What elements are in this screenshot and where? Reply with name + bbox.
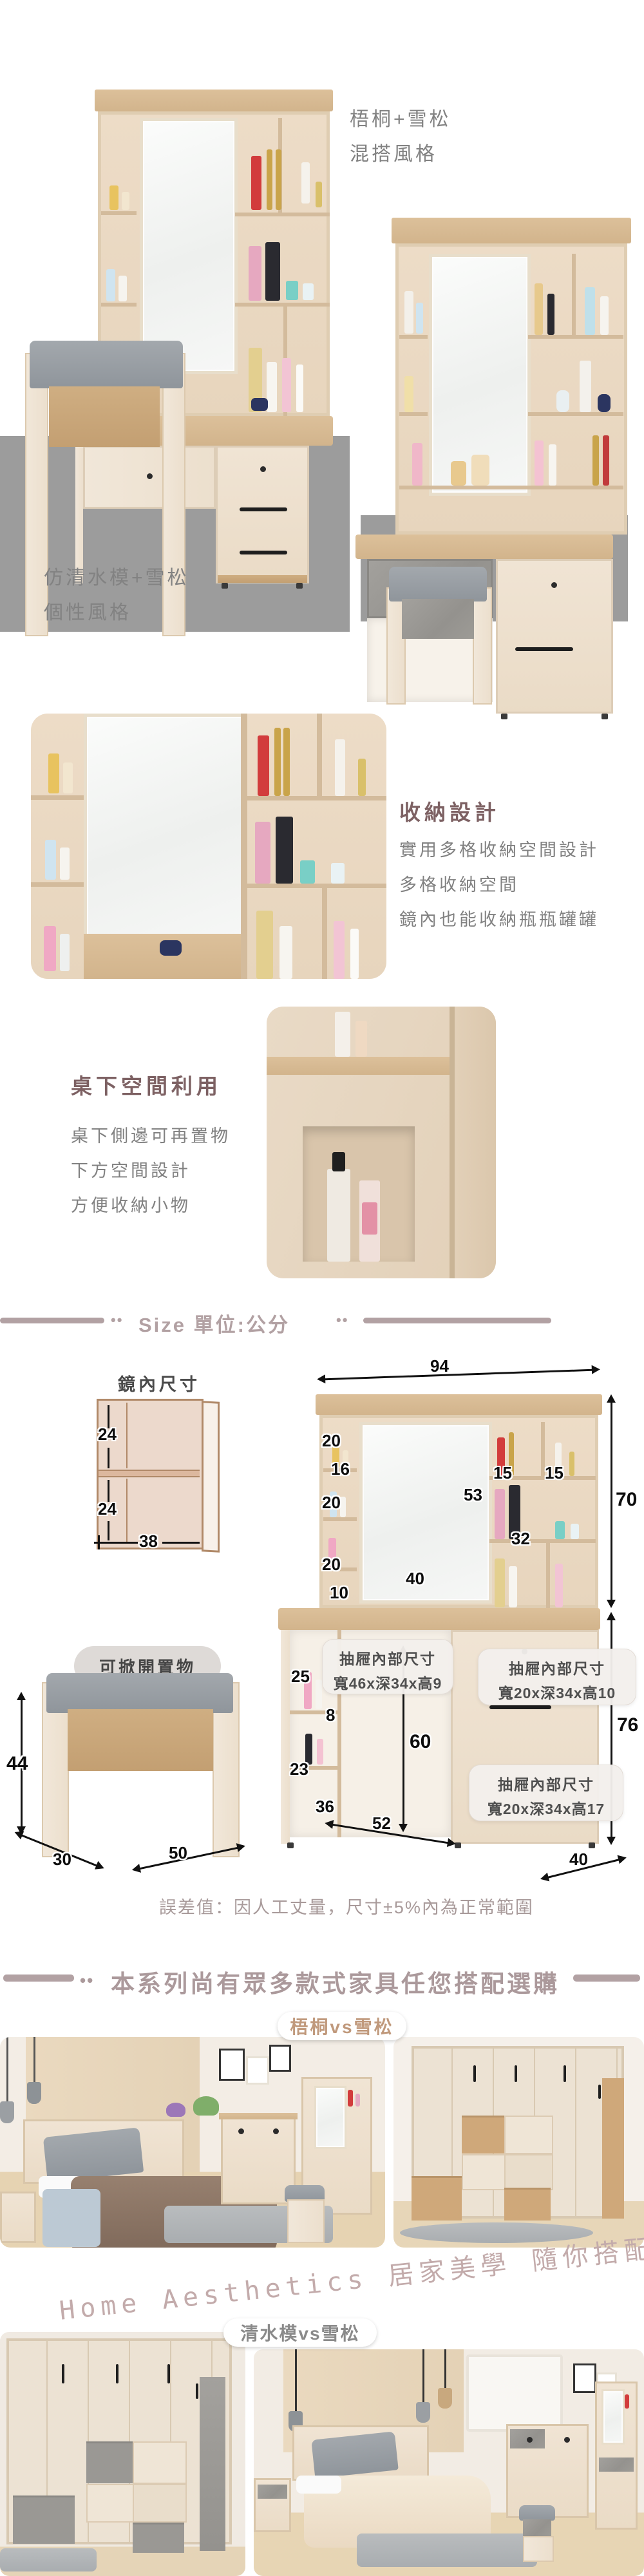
bottle [495, 1558, 505, 1607]
pendant-cord [295, 2349, 297, 2411]
wardrobe-drawer [133, 2441, 187, 2484]
dim-cell5: 10 [330, 1583, 348, 1603]
stool-legs [523, 2536, 554, 2562]
wardrobe-doors-small [462, 2154, 507, 2190]
dim-tick [108, 1448, 109, 1468]
bottle [603, 435, 609, 486]
series-header-bar-right [573, 1975, 640, 1982]
dim-cell3: 20 [322, 1493, 341, 1513]
bottle [45, 840, 56, 880]
door-handle [473, 2065, 476, 2082]
bottle [555, 1564, 563, 1607]
cream-jar [160, 940, 182, 956]
door-handle [62, 2364, 64, 2383]
pendant-cord [444, 2349, 446, 2388]
shelf-divider [399, 486, 623, 489]
callout1-line1: 抽屜內部尺寸 [323, 1647, 453, 1669]
dim-mirror-upper: 24 [98, 1425, 117, 1444]
door-handle [515, 2065, 517, 2082]
shelf-divider [31, 882, 84, 887]
shelf-divider [101, 211, 137, 215]
vanity1-cornice [95, 90, 333, 111]
feature-underdesk-line3: 方便收納小物 [71, 1191, 191, 1217]
drawer-callout-1: 抽屜內部尺寸 寬46x深34x高9 [322, 1639, 453, 1694]
dimension-arrow [611, 1397, 612, 1605]
bottle [251, 156, 261, 210]
bottle [547, 294, 554, 335]
bottle [109, 185, 118, 210]
shelf-divider [31, 795, 84, 800]
wardrobe [6, 2338, 232, 2544]
shelf-divider [247, 796, 386, 800]
mirror-closeup [84, 714, 247, 940]
vanity2-desktop [355, 535, 613, 559]
cream-jar [251, 398, 268, 411]
bottle [267, 149, 272, 210]
dim-mirror-lower: 24 [98, 1499, 117, 1519]
bedroom-photo-wutong [0, 2037, 385, 2248]
nightstand [0, 2192, 36, 2243]
rug [0, 2548, 97, 2571]
dim-stool-height: 44 [6, 1753, 28, 1775]
shelf-divider [322, 887, 327, 979]
shelf-divider [546, 1543, 550, 1608]
dim-open-width: 36 [316, 1797, 334, 1817]
bottle [358, 759, 366, 796]
wall-frame [246, 2056, 269, 2085]
bottle-cap [332, 1152, 345, 1171]
kickboard [218, 575, 307, 583]
bottle [274, 728, 281, 796]
bottle [535, 440, 544, 486]
panel-seam [450, 1007, 455, 1278]
bottle [580, 361, 591, 412]
cream-jar [598, 394, 611, 412]
product-page: 梧桐+雪松 混搭風格 仿清水模+雪松 個性風格 [0, 0, 644, 2576]
dim-cell2: 16 [331, 1459, 350, 1479]
dim-right-cell2: 15 [545, 1463, 563, 1483]
vanity-small-mirror [314, 2086, 346, 2149]
bottle [63, 762, 73, 793]
series-header-bar-left [3, 1975, 74, 1982]
drawer-handle [240, 507, 287, 511]
shelf-divider [247, 884, 386, 888]
bottle [316, 182, 322, 207]
size-header-dots-right: •• [336, 1312, 348, 1329]
bed-sheet [296, 2476, 341, 2494]
style-a-line2: 混搭風格 [350, 138, 437, 166]
side-stile [455, 1007, 496, 1278]
stool2-right-leg [473, 587, 492, 705]
mirror-inner-title: 鏡內尺寸 [118, 1370, 200, 1396]
dim-stool-depth: 30 [53, 1850, 71, 1870]
style-b-line1: 仿清水模+雪松 [44, 562, 189, 590]
foot [501, 714, 507, 719]
wardrobe-concrete-drawer [13, 2495, 75, 2544]
foot [287, 1842, 294, 1848]
plant [193, 2096, 219, 2116]
callout1-line2: 寬46x深34x高9 [323, 1671, 453, 1693]
bottle [625, 2394, 629, 2409]
dim-hutch-width: 94 [430, 1356, 449, 1376]
drawer-knob [273, 2128, 279, 2134]
bedroom-photo-concrete [254, 2349, 644, 2576]
shelf-divider [235, 303, 330, 307]
shelf-divider [528, 412, 623, 416]
dim-desk-height: 76 [617, 1714, 638, 1736]
bottle [334, 921, 345, 979]
wardrobe-drawer [504, 2116, 553, 2154]
shelf-divider [323, 1517, 357, 1521]
bottle [256, 911, 273, 979]
drawer-handle [240, 551, 287, 554]
clear-bottle [327, 1169, 350, 1262]
shelf-divider [528, 335, 623, 339]
dim-tick [162, 1542, 200, 1544]
dim-open-upper: 25 [291, 1667, 310, 1687]
vanity-concrete-drawer [599, 2458, 634, 2472]
pendant-lamp [416, 2402, 430, 2423]
stool1-apron [49, 386, 160, 447]
bottle [48, 753, 59, 793]
dim-open-lower: 23 [290, 1759, 308, 1779]
foot [222, 583, 228, 589]
callout3-line1: 抽屜內部尺寸 [469, 1772, 623, 1794]
bottle [282, 358, 291, 412]
wall-frame [573, 2363, 596, 2393]
wardrobe-wood-drawer [412, 2176, 462, 2221]
feature-storage-photo [31, 714, 386, 979]
callout3-line2: 寬20x深34x高17 [469, 1797, 623, 1819]
dim-cell1: 20 [322, 1431, 341, 1451]
bottle [276, 817, 293, 884]
foot [601, 714, 608, 719]
dim-hutch-height: 70 [616, 1489, 637, 1511]
pendant-cord [6, 2037, 8, 2101]
size-vanity-desktop [278, 1608, 600, 1630]
storage-niche [303, 1126, 415, 1262]
stool-cushion [519, 2505, 555, 2521]
feature-storage-line1: 實用多格收納空間設計 [399, 836, 599, 861]
bottle [340, 1497, 346, 1517]
drawer-callout-3: 抽屜內部尺寸 寬20x深34x高17 [469, 1765, 623, 1821]
pendant-lamp [438, 2388, 452, 2409]
wardrobe-drawer [133, 2484, 187, 2523]
bottle [316, 1680, 322, 1709]
dim-right-cell1: 15 [493, 1463, 512, 1483]
dim-tick [106, 1542, 138, 1544]
door-handle [196, 2383, 198, 2399]
size-stool-cushion [46, 1673, 233, 1713]
style-b-line2: 個性風格 [44, 596, 131, 625]
bed-throw [43, 2189, 100, 2247]
bottle-label [362, 1202, 377, 1235]
size-vanity-cornice [316, 1394, 602, 1415]
bottle [118, 276, 127, 301]
dim-open-gap: 8 [326, 1705, 335, 1725]
pendant-lamp [27, 2082, 41, 2104]
bottle [350, 929, 359, 979]
drawer-knob [238, 2128, 244, 2134]
vanity2-cornice [392, 218, 631, 243]
drawer-knob [551, 582, 557, 588]
shelf-divider [572, 254, 576, 339]
bottle [355, 1021, 367, 1057]
perfume-bottle [451, 461, 466, 486]
bottle [303, 283, 314, 300]
rug [357, 2533, 537, 2567]
drawer-knob [527, 2437, 533, 2443]
dresser-top [219, 2113, 298, 2119]
bottle [267, 362, 277, 412]
dim-mirror-height: 53 [464, 1485, 482, 1505]
door-handle [563, 2065, 566, 2082]
dim-tick [94, 1542, 106, 1544]
wardrobe-concrete-drawer [86, 2441, 133, 2483]
feature-underdesk-line1: 桌下側邊可再置物 [71, 1122, 231, 1147]
shelf-divider [235, 213, 330, 216]
shelf-divider [399, 412, 428, 416]
mirror-inner-shelf [99, 1470, 200, 1477]
size-header-bar-left [0, 1318, 104, 1323]
wardrobe-photo-concrete [0, 2332, 245, 2576]
bottle [60, 848, 70, 880]
drawer-handle [515, 647, 573, 651]
feature-storage-line3: 鏡內也能收納瓶瓶罐罐 [399, 905, 599, 931]
wardrobe-doors-small [86, 2484, 135, 2523]
bottle [317, 1739, 323, 1765]
bottle [535, 283, 543, 335]
bottle [276, 149, 281, 210]
feature-underdesk-photo [267, 1007, 496, 1278]
perfume-bottle [471, 455, 489, 486]
dim-stool-width: 50 [169, 1843, 187, 1863]
bottle [416, 303, 423, 334]
drawer-knob [564, 2437, 570, 2443]
pendant-cord [33, 2037, 35, 2082]
dimension-arrow [135, 1846, 243, 1870]
vanity-small-mirror [601, 2389, 625, 2445]
wardrobe-wood-door [602, 2078, 624, 2219]
stool2-cushion [389, 567, 487, 601]
drawer-knob [147, 473, 153, 479]
pendant-lamp [0, 2101, 14, 2123]
bottle [335, 1012, 350, 1057]
shelf-divider [489, 1539, 596, 1543]
stool1-cushion [30, 341, 183, 388]
bottle [296, 365, 303, 412]
dim-cell4: 20 [322, 1555, 341, 1575]
bottle [106, 269, 115, 301]
dimension-arrow [320, 1368, 597, 1380]
bottle [569, 1452, 574, 1476]
door-handle [167, 2364, 170, 2383]
dim-desk-depth: 40 [569, 1850, 588, 1870]
drawer-knob [260, 466, 266, 472]
dim-shelf-width: 32 [511, 1529, 530, 1549]
shelf-board [267, 1057, 460, 1075]
series-header-dots-right: •• [542, 1971, 556, 1991]
series-header-dots-left: •• [80, 1971, 94, 1991]
callout2-line1: 抽屜內部尺寸 [478, 1656, 636, 1678]
vanity1-mirror [140, 118, 238, 374]
dim-knee-height: 60 [410, 1731, 431, 1753]
stool-body [287, 2199, 325, 2243]
bottle [60, 934, 70, 971]
dim-tick [108, 1521, 109, 1540]
wardrobe-concrete-door [200, 2377, 225, 2551]
stool-concrete-apron [523, 2519, 551, 2536]
feature-underdesk-title: 桌下空間利用 [71, 1069, 222, 1100]
bottle [335, 739, 345, 796]
wardrobe-wood-drawer [462, 2116, 504, 2154]
series-pill-concrete: 清水模vs雪松 [223, 2318, 377, 2347]
door-handle [598, 2085, 601, 2099]
size-header-bar-right [363, 1318, 551, 1323]
bottle [331, 863, 345, 884]
cream-jar [556, 390, 569, 412]
bottle [509, 1566, 517, 1607]
stool1-right-leg [162, 353, 185, 636]
wardrobe-photo-wutong [393, 2037, 644, 2248]
nightstand-concrete-drawer [258, 2485, 287, 2499]
size-vanity-left-leg [281, 1630, 290, 1844]
dim-tick [108, 1480, 109, 1502]
bottle [355, 2094, 360, 2107]
mirror-inner-corner [126, 1479, 128, 1543]
bottle [301, 162, 310, 204]
bottle [571, 1524, 579, 1539]
dim-mirror-width: 40 [406, 1569, 424, 1589]
size-header-dots-left: •• [111, 1312, 123, 1329]
bottle [122, 192, 129, 210]
callout2-line2: 寬20x深34x高10 [478, 1681, 636, 1703]
bottle [585, 287, 595, 335]
bottle [255, 822, 270, 884]
foot [589, 1842, 595, 1848]
bottle [249, 246, 261, 301]
bottle [286, 281, 298, 300]
bottle [600, 296, 609, 335]
bottle [44, 926, 56, 971]
bottle [404, 291, 413, 334]
bottle [549, 444, 556, 486]
stool2-concrete-apron [402, 599, 474, 639]
style-a-line1: 梧桐+雪松 [350, 103, 451, 131]
tolerance-note: 誤差值：因人工丈量，尺寸±5%內為正常範圍 [159, 1893, 534, 1918]
pendant-cord [422, 2349, 424, 2402]
dim-mirror-width: 38 [139, 1531, 158, 1551]
series-header-title: 本系列尚有眾多款式家具任您搭配選購 [111, 1964, 560, 1999]
bottle [265, 242, 280, 301]
stool1-left-leg [25, 353, 48, 636]
wardrobe-concrete-drawer [133, 2523, 184, 2553]
bottle [495, 1489, 505, 1539]
foot [296, 583, 303, 589]
bottle [300, 860, 315, 884]
wall-frame [219, 2049, 245, 2081]
wall-frame [269, 2045, 291, 2072]
wardrobe [412, 2046, 624, 2219]
drawer-handle [489, 1705, 551, 1709]
feature-underdesk-line2: 下方空間設計 [71, 1157, 191, 1182]
wardrobe-drawer [504, 2154, 553, 2190]
shelf-divider [101, 303, 137, 307]
bottle [283, 728, 290, 796]
window [466, 2354, 563, 2432]
bottle [555, 1521, 565, 1539]
plant [166, 2103, 185, 2117]
wardrobe-wood-drawer [504, 2188, 551, 2221]
feature-storage-line2: 多格收納空間 [399, 871, 519, 896]
size-stool-apron [68, 1709, 213, 1771]
bottle [404, 376, 413, 412]
bottle [348, 2090, 353, 2107]
door-handle [116, 2364, 118, 2383]
bottle [258, 735, 269, 796]
series-pill-wutong: 梧桐vs雪松 [278, 2012, 406, 2040]
shelf-divider [317, 714, 322, 796]
mirror-inner-side [202, 1401, 220, 1552]
bottle [592, 435, 599, 486]
feature-storage-title: 收納設計 [399, 795, 500, 826]
shelf-divider [399, 335, 428, 339]
mirror-inner-corner [126, 1403, 128, 1468]
dim-desk-width: 52 [372, 1814, 391, 1833]
shelf-divider [241, 714, 247, 979]
bottle [279, 926, 292, 979]
bottle [412, 443, 422, 486]
size-vanity-mirror [359, 1422, 492, 1604]
drawer-callout-2: 抽屜內部尺寸 寬20x深34x高10 [478, 1649, 636, 1705]
size-header-title: Size 單位:公分 [138, 1309, 290, 1338]
